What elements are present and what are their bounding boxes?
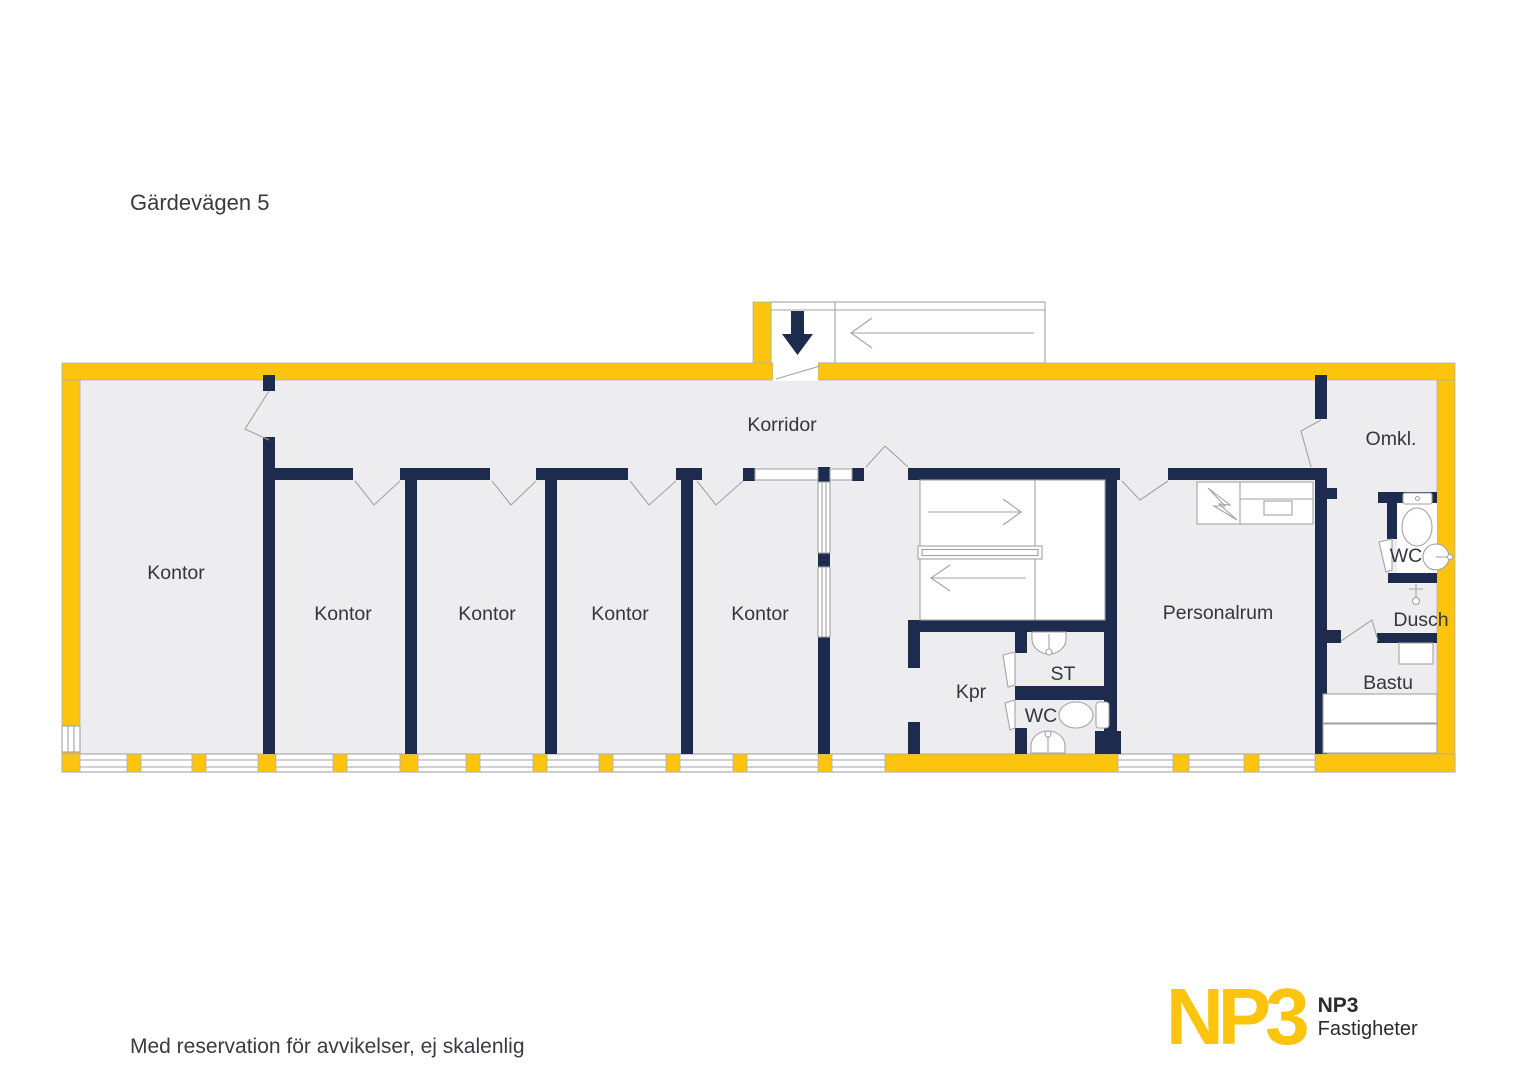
sauna-benches — [1323, 694, 1437, 753]
floorplan-page: Gärdevägen 5 — [0, 0, 1527, 1080]
room-label-kontor-3: Kontor — [458, 603, 516, 625]
disclaimer-text: Med reservation för avvikelser, ej skale… — [130, 1035, 525, 1059]
np3-logo-name: NP3 — [1318, 994, 1418, 1018]
np3-logo-text: NP3 Fastigheter — [1318, 994, 1418, 1041]
sauna-heater — [1399, 643, 1433, 664]
room-label-kontor-4: Kontor — [591, 603, 649, 625]
np3-logo-subtitle: Fastigheter — [1318, 1018, 1418, 1041]
room-label-korridor: Korridor — [747, 414, 817, 436]
room-label-kontor-1: Kontor — [147, 562, 205, 584]
toilet-icon — [1402, 493, 1432, 546]
room-label-kontor-2: Kontor — [314, 603, 372, 625]
room-label-wc-right: WC — [1390, 545, 1423, 567]
kitchenette — [1197, 482, 1313, 524]
room-label-kontor-5: Kontor — [731, 603, 789, 625]
room-label-bastu: Bastu — [1363, 672, 1413, 694]
room-label-kpr: Kpr — [956, 681, 987, 703]
stairs-handrail — [918, 546, 1042, 559]
room-label-wc-small: WC — [1025, 705, 1058, 727]
room-label-personalrum: Personalrum — [1163, 602, 1274, 624]
np3-logo: NP3 NP3 Fastigheter — [1166, 978, 1418, 1056]
entrance-vestibule — [753, 302, 1045, 363]
room-label-omkl: Omkl. — [1366, 428, 1417, 450]
floor-plan: Korridor Kontor Kontor Kontor Kontor Kon… — [0, 0, 1527, 1080]
np3-logo-mark: NP3 — [1166, 978, 1304, 1056]
left-wall-window — [62, 726, 80, 752]
wc-toilet-icon — [1059, 702, 1109, 728]
room-label-dusch: Dusch — [1393, 609, 1448, 631]
room-label-st: ST — [1051, 663, 1076, 685]
staircase — [918, 480, 1105, 620]
